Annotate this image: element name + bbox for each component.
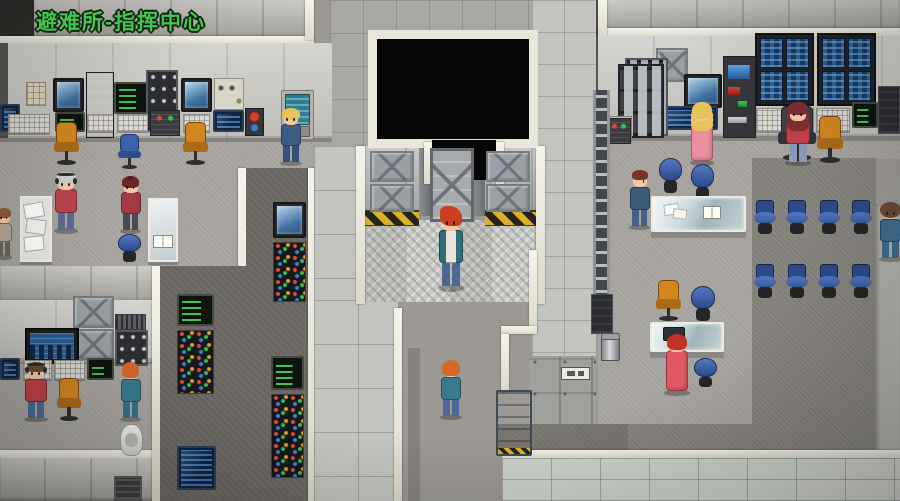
npc-edge-partial[interactable]: [0, 208, 14, 260]
npc-eye: [286, 118, 288, 121]
chair-base: [790, 287, 803, 298]
npc-body: [880, 219, 900, 242]
npc-body: [441, 377, 462, 400]
stool-seat: [694, 358, 717, 377]
console-blue-1[interactable]: [213, 110, 244, 132]
npc-hair: [632, 170, 648, 180]
npc-maroon-woman[interactable]: [118, 176, 143, 234]
dark-rack-right[interactable]: [878, 86, 900, 134]
entity-layer: [0, 0, 900, 501]
npc-hair: [440, 206, 462, 226]
npc-pink-robe[interactable]: [688, 102, 716, 166]
npc-eye: [61, 183, 63, 186]
npc-body: [630, 187, 650, 210]
npc-eye: [893, 212, 895, 215]
office-chair-bl[interactable]: [56, 378, 82, 422]
monitor-screen: [822, 71, 845, 101]
npc-headphone-ear: [43, 367, 47, 373]
cam-monitor-1[interactable]: [53, 78, 84, 112]
npc-eye: [126, 186, 128, 189]
npc-elder-headphones[interactable]: [52, 172, 80, 234]
npc-headphone-ear: [73, 178, 77, 184]
monitor-screen: [822, 38, 845, 68]
mini-console-1[interactable]: [150, 110, 180, 136]
chair-post: [828, 148, 831, 158]
open-book: [153, 235, 173, 248]
npc-hair: [692, 102, 711, 119]
wall-sign: [561, 367, 590, 380]
glass-table-1[interactable]: [651, 196, 746, 232]
chair-post: [67, 407, 70, 416]
npc-hair-bun: [127, 176, 134, 180]
npc-eye: [133, 186, 135, 189]
green-terminal-4[interactable]: [87, 358, 114, 380]
chair-post: [667, 308, 670, 316]
led-rack-1[interactable]: [273, 242, 306, 302]
chair-base: [186, 160, 204, 165]
paper-cart[interactable]: [20, 196, 52, 262]
npc-body: [0, 223, 12, 243]
office-chair-right-2[interactable]: [655, 280, 682, 322]
npc-eye: [68, 183, 70, 186]
npc-hair: [880, 202, 900, 218]
keyboard-3[interactable]: [117, 114, 148, 132]
stool-seat: [691, 164, 714, 188]
location-label: 避难所-指挥中心: [36, 6, 206, 36]
stool-seat: [659, 158, 682, 181]
monitor-bank-1[interactable]: [755, 33, 814, 106]
monitor-screen: [760, 71, 783, 101]
vent-1: [115, 314, 146, 330]
monitor-screen: [848, 71, 871, 101]
chair-base: [60, 416, 78, 421]
chair-back: [120, 134, 138, 153]
chair-base: [822, 287, 835, 298]
npc-hair: [788, 102, 808, 115]
ladder-cabinet[interactable]: [591, 294, 613, 334]
cam-monitor-2[interactable]: [181, 78, 212, 112]
console-rack-1[interactable]: [723, 56, 756, 138]
stool-r4[interactable]: [694, 358, 717, 390]
stool-left[interactable]: [118, 234, 141, 264]
open-book: [703, 206, 721, 219]
npc-body: [439, 230, 463, 263]
npc-body: [121, 379, 141, 402]
led-rack-3[interactable]: [271, 394, 304, 478]
lower-door[interactable]: [496, 390, 532, 456]
green-terminal-3[interactable]: [852, 102, 878, 128]
stool-base: [699, 377, 713, 388]
meeting-chair-7[interactable]: [817, 264, 841, 300]
breaker-panel-2[interactable]: [115, 330, 148, 366]
stool-base: [696, 308, 710, 321]
npc-eye: [446, 221, 448, 225]
xpanel-elev-4: [486, 184, 530, 212]
npc-hair: [282, 108, 300, 120]
npc-hair: [442, 360, 460, 376]
meeting-chair-3[interactable]: [817, 200, 841, 236]
papers: [672, 208, 687, 220]
green-terminal-5[interactable]: [177, 294, 214, 326]
paper-stack: [25, 218, 46, 235]
meeting-chair-2[interactable]: [785, 200, 809, 236]
npc-body: [55, 189, 77, 213]
npc-navy-profile[interactable]: [627, 170, 652, 230]
xpanel-elev-3: [486, 151, 530, 182]
xpanel-bl-1: [73, 296, 114, 328]
red-console-1[interactable]: [245, 108, 264, 136]
npc-corridor-walker[interactable]: [438, 360, 464, 420]
game-viewport: 避难所-指挥中心: [0, 0, 900, 501]
npc-body: [121, 192, 141, 214]
chair-base: [57, 160, 75, 165]
trash-can-1[interactable]: [601, 334, 620, 361]
hatch-1: [114, 476, 142, 501]
npc-red-dress[interactable]: [662, 334, 692, 396]
chair-base: [822, 223, 835, 234]
npc-console-blonde[interactable]: [278, 108, 304, 166]
green-terminal-1[interactable]: [114, 82, 148, 114]
console-blue-3[interactable]: [0, 358, 20, 380]
office-chair-left-3[interactable]: [182, 122, 209, 166]
npc-eye: [793, 113, 795, 116]
green-terminal-6[interactable]: [271, 356, 304, 390]
console-blue-4[interactable]: [177, 446, 216, 490]
meeting-chair-8[interactable]: [849, 264, 873, 300]
chair-base: [122, 165, 138, 169]
monitor-screen: [786, 71, 809, 101]
cam-monitor-4[interactable]: [273, 202, 306, 238]
xpanel-elev-1: [370, 151, 414, 182]
chair-post: [65, 151, 68, 160]
npc-headphones-band: [27, 363, 45, 366]
npc-hair: [667, 334, 687, 350]
switch-panel-1[interactable]: [214, 78, 244, 110]
stool-seat: [691, 286, 715, 309]
chair-base: [820, 157, 839, 163]
chair-base: [758, 287, 771, 298]
chair-base: [854, 287, 867, 298]
npc-hair: [122, 362, 139, 378]
stool-base: [123, 251, 137, 261]
led-rack-2[interactable]: [177, 330, 214, 394]
monitor-screen: [786, 38, 809, 68]
paper-stack: [23, 235, 45, 252]
npc-shadow: [664, 390, 689, 396]
chair-base: [790, 223, 803, 234]
monitor-screen: [760, 38, 783, 68]
keyboard-1[interactable]: [8, 114, 50, 134]
keyboard-8[interactable]: [54, 360, 85, 380]
stool-seat: [118, 234, 141, 252]
stool-r1[interactable]: [659, 158, 682, 196]
keypad-left[interactable]: [26, 82, 46, 106]
office-chair-left-2[interactable]: [118, 134, 141, 170]
chair-base: [758, 223, 771, 234]
office-chair-left-1[interactable]: [53, 122, 80, 166]
npc-eye: [886, 212, 888, 215]
book-stand[interactable]: [148, 198, 178, 262]
monitor-screen: [848, 38, 871, 68]
stool-r3[interactable]: [691, 286, 715, 324]
xpanel-bl-2: [73, 329, 114, 360]
npc-body: [281, 124, 302, 146]
npc-robe: [666, 350, 689, 391]
meeting-chair-4[interactable]: [849, 200, 873, 236]
npc-eye: [293, 118, 295, 121]
player-character[interactable]: [436, 206, 466, 292]
monitor-bank-2[interactable]: [817, 33, 876, 106]
stool-base: [664, 180, 678, 193]
npc-headphones-man[interactable]: [22, 362, 50, 422]
npc-body: [25, 379, 47, 402]
npc-console-woman[interactable]: [118, 362, 143, 422]
npc-headphone-ear: [55, 178, 59, 184]
mini-console-2[interactable]: [607, 118, 631, 144]
chair-base: [659, 316, 677, 321]
meeting-chair-5[interactable]: [753, 264, 777, 300]
npc-seated-red-jacket[interactable]: [783, 102, 813, 166]
toilet[interactable]: [120, 424, 143, 456]
chair-post: [128, 158, 131, 165]
wall-monitor-bl[interactable]: [25, 328, 79, 364]
meeting-chair-6[interactable]: [785, 264, 809, 300]
meeting-chair-1[interactable]: [753, 200, 777, 236]
chair-base: [854, 223, 867, 234]
chair-post: [194, 151, 197, 160]
xpanel-elev-2: [370, 184, 414, 212]
office-chair-right-1[interactable]: [816, 116, 844, 164]
npc-curly-right-edge[interactable]: [877, 202, 900, 262]
locker-left[interactable]: [86, 72, 114, 138]
